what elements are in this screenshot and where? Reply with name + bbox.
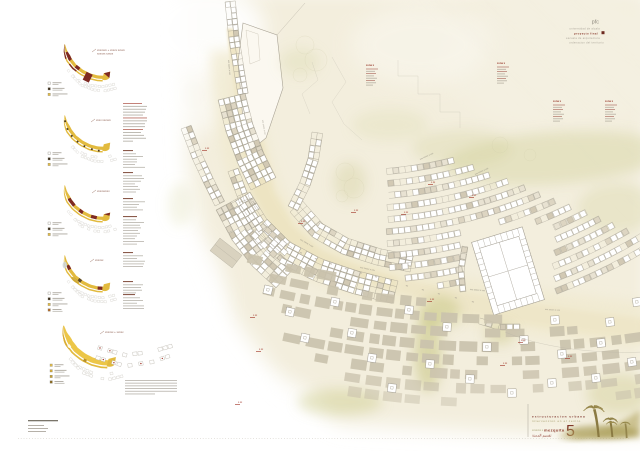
svg-text:xxxxxx xxxxx: xxxxxx xxxxx <box>97 52 114 56</box>
svg-text:estructuracion urbana: estructuracion urbana <box>532 415 586 419</box>
svg-text:universidad de alcala: universidad de alcala <box>569 27 600 31</box>
svg-text:mezquita: mezquita <box>544 428 565 433</box>
svg-text:zona x: zona x <box>497 62 506 65</box>
svg-text:xxxxxx: xxxxxx <box>95 258 104 262</box>
svg-text:zona x: zona x <box>366 64 375 67</box>
svg-text:تقسيم المدينة: تقسيم المدينة <box>532 434 551 438</box>
svg-text:xxxxxx + xxxxx: xxxxxx + xxxxx <box>105 330 124 334</box>
svg-text:xxxxxxxxx: xxxxxxxxx <box>97 189 110 193</box>
svg-text:proyecto final: proyecto final <box>574 31 598 35</box>
svg-text:xxxx xxxxxx: xxxx xxxxxx <box>96 118 111 122</box>
svg-text:pfc: pfc <box>592 20 600 26</box>
svg-text:zona x: zona x <box>605 100 614 103</box>
svg-text:escuela de arquitectura: escuela de arquitectura <box>566 36 600 40</box>
svg-text:ordenacion del territorio: ordenacion del territorio <box>569 41 604 45</box>
svg-text:xxxxxxx x: xxxxxxx x <box>532 429 544 432</box>
svg-text:zona x: zona x <box>553 100 562 103</box>
